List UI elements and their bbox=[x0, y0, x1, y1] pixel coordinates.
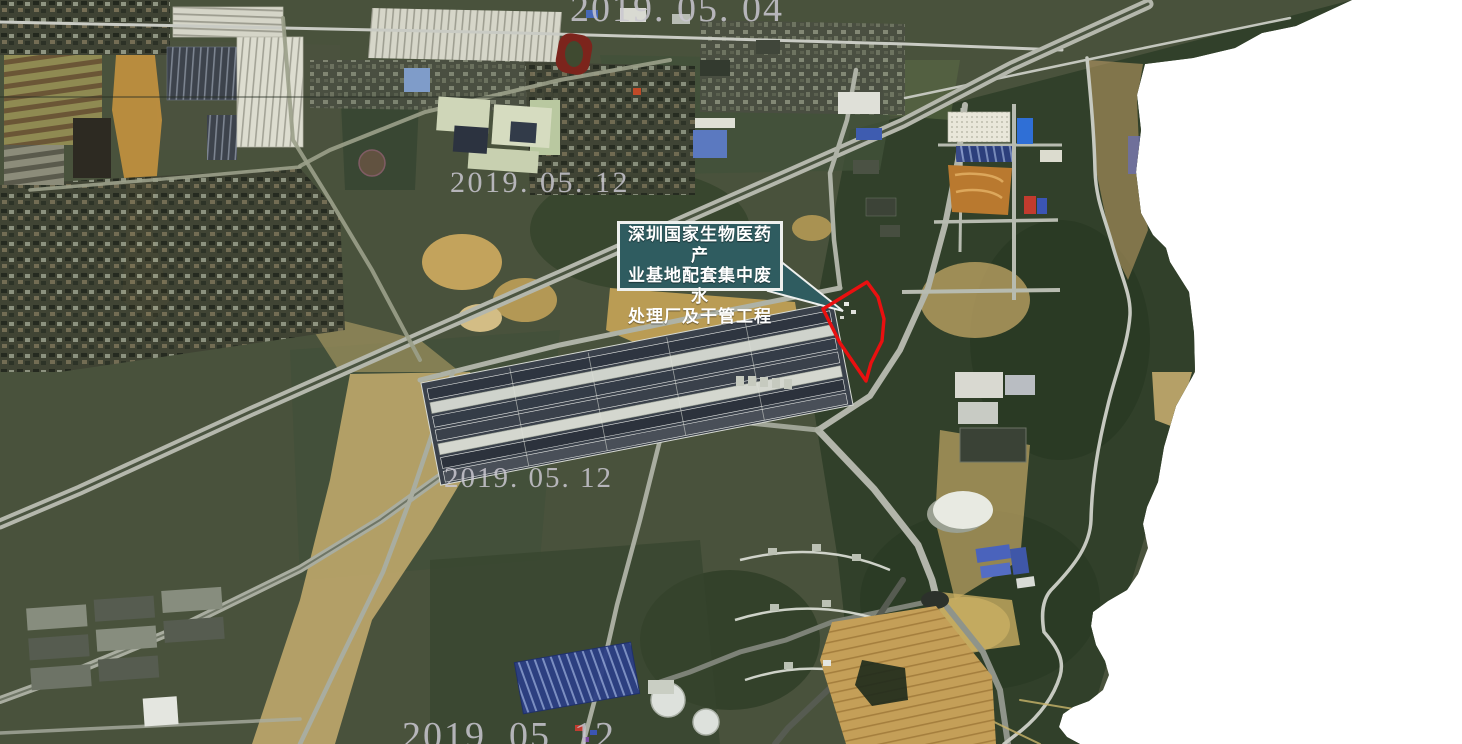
callout-line: 深圳国家生物医药产 bbox=[620, 225, 780, 266]
callout-line: 业基地配套集中废水 bbox=[620, 266, 780, 307]
callout-line: 处理厂及干管工程 bbox=[620, 307, 780, 328]
mosaic-seam bbox=[1200, 258, 1445, 261]
imagery-canvas bbox=[0, 0, 1462, 744]
satellite-map: 深圳国家生物医药产 业基地配套集中废水 处理厂及干管工程 2019. 05. 0… bbox=[0, 0, 1462, 744]
imagery-layer bbox=[0, 0, 1462, 744]
callout-label: 深圳国家生物医药产 业基地配套集中废水 处理厂及干管工程 bbox=[617, 221, 783, 291]
